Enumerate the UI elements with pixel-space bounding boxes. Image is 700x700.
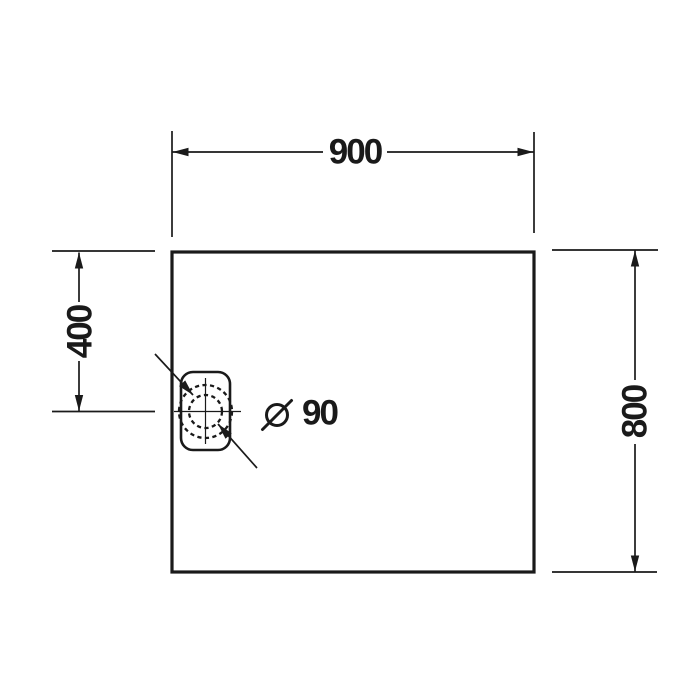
dim-width-label: 900 <box>329 133 383 172</box>
drain-leader-lower-arrow <box>218 424 257 468</box>
diameter-value: 90 <box>302 394 338 433</box>
technical-drawing: 900 400 800 90 <box>0 0 700 700</box>
dim-width: 900 <box>172 131 534 237</box>
dim-height: 800 <box>552 250 658 572</box>
dim-height-label: 800 <box>616 384 655 438</box>
drain-assembly <box>155 354 257 468</box>
dim-offset-label: 400 <box>61 304 100 358</box>
drawing-page: 900 400 800 90 <box>0 0 700 700</box>
dim-drain-offset: 400 <box>52 251 155 412</box>
drain-diameter-label: 90 <box>263 394 339 433</box>
